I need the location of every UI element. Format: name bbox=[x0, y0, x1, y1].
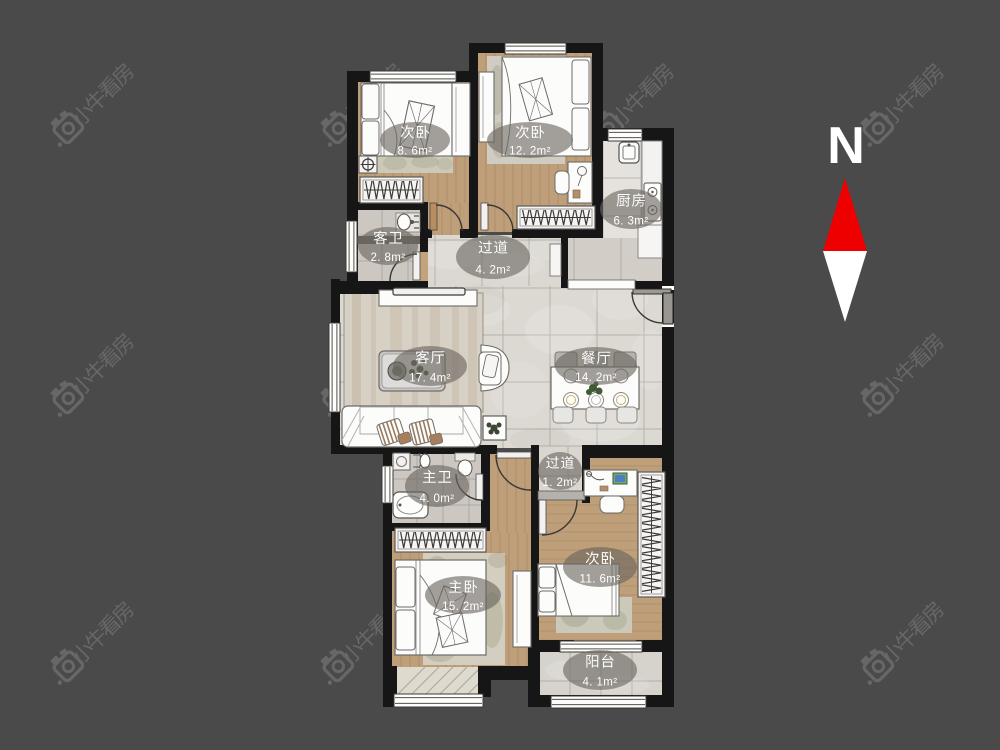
svg-text:4. 0m²: 4. 0m² bbox=[420, 493, 455, 505]
svg-text:17. 4m²: 17. 4m² bbox=[409, 373, 451, 385]
svg-text:11. 6m²: 11. 6m² bbox=[580, 574, 621, 586]
svg-text:12. 2m²: 12. 2m² bbox=[509, 145, 551, 157]
svg-text:15. 2m²: 15. 2m² bbox=[442, 601, 484, 613]
svg-text:4. 1m²: 4. 1m² bbox=[583, 677, 618, 689]
svg-text:N: N bbox=[827, 117, 865, 175]
svg-text:2. 8m²: 2. 8m² bbox=[371, 252, 406, 264]
svg-text:6. 3m²: 6. 3m² bbox=[614, 216, 649, 228]
svg-text:1. 2m²: 1. 2m² bbox=[543, 477, 578, 489]
svg-text:8. 6m²: 8. 6m² bbox=[398, 145, 433, 157]
svg-text:14. 2m²: 14. 2m² bbox=[575, 372, 617, 384]
svg-text:4. 2m²: 4. 2m² bbox=[476, 265, 511, 277]
